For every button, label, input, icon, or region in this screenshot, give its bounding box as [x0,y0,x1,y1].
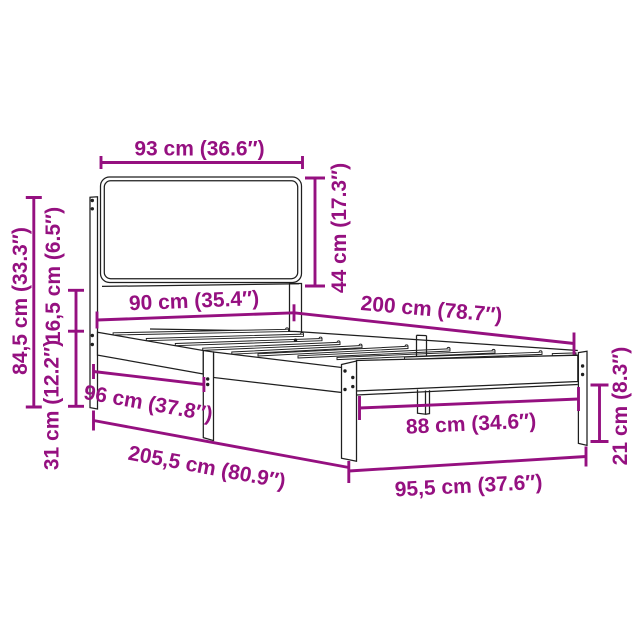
svg-text:93 cm (36.6″): 93 cm (36.6″) [134,138,264,161]
svg-text:44 cm (17.3″): 44 cm (17.3″) [328,163,351,293]
svg-text:21 cm (8.3″): 21 cm (8.3″) [609,347,632,466]
svg-text:31 cm (12.2″): 31 cm (12.2″) [40,340,63,470]
svg-text:16,5 cm (6.5″): 16,5 cm (6.5″) [42,207,65,343]
svg-text:84,5 cm (33.3″): 84,5 cm (33.3″) [9,227,32,375]
